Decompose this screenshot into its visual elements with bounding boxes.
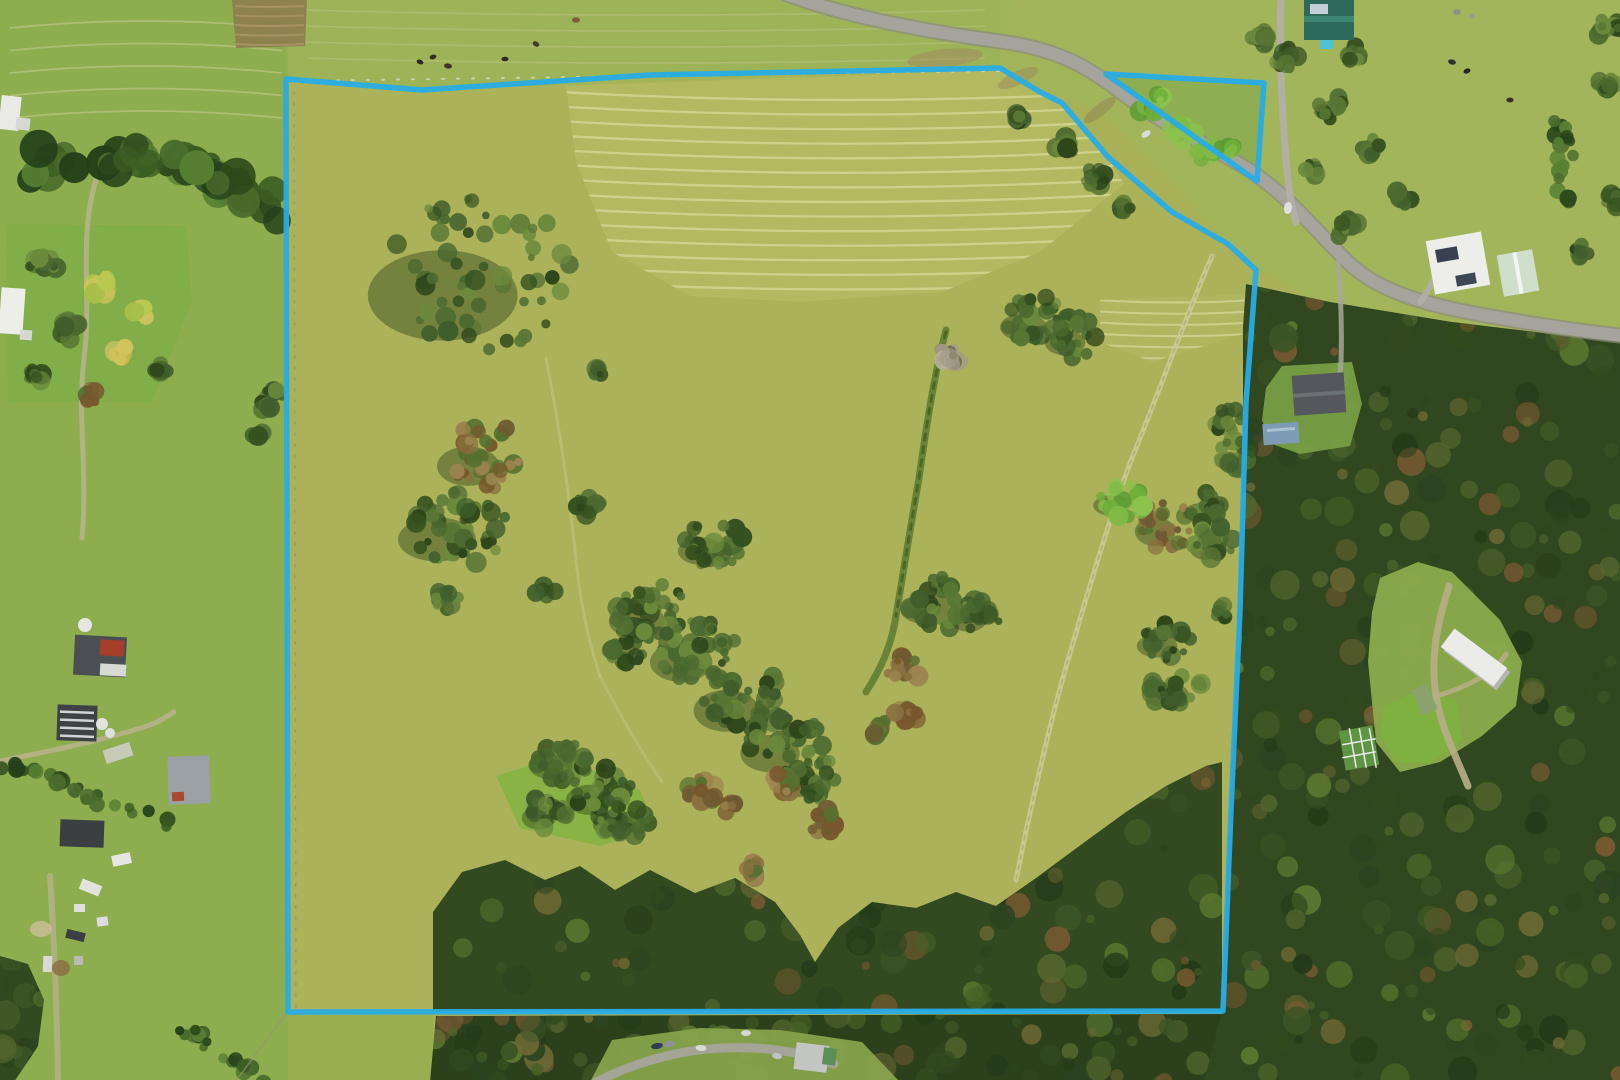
round-pen bbox=[52, 960, 70, 976]
garden-tree bbox=[84, 271, 117, 304]
cow bbox=[572, 17, 580, 22]
cow bbox=[1506, 98, 1513, 103]
vehicle bbox=[96, 916, 108, 926]
aerial-photo bbox=[0, 0, 1620, 1080]
southwest-pasture bbox=[288, 1012, 433, 1080]
water-tank bbox=[78, 618, 92, 632]
rock bbox=[1469, 14, 1475, 19]
dirt-rows bbox=[232, 0, 307, 48]
rock bbox=[1453, 9, 1461, 15]
water-tank bbox=[105, 728, 115, 738]
white-van bbox=[43, 956, 53, 972]
trailer bbox=[74, 904, 85, 912]
dark-shed-roof bbox=[60, 819, 105, 848]
pool bbox=[1320, 40, 1333, 49]
water-tank bbox=[96, 718, 108, 730]
solar-panels bbox=[1310, 4, 1328, 14]
red-roof-section bbox=[100, 639, 125, 656]
cottage-red-section bbox=[172, 792, 184, 801]
parked-car bbox=[741, 1030, 751, 1036]
teal-roof-ridge bbox=[1304, 16, 1354, 22]
south-building-green bbox=[822, 1047, 837, 1065]
small-structure bbox=[74, 956, 83, 965]
aerial-photo-canvas bbox=[0, 0, 1620, 1080]
sand-pad bbox=[30, 921, 52, 937]
neighbour-shed-roof bbox=[15, 117, 30, 130]
cow bbox=[502, 57, 509, 62]
neighbour-shed-roof bbox=[20, 330, 33, 341]
neighbour-house-roof bbox=[0, 287, 26, 335]
blue-shed-roof bbox=[1262, 422, 1299, 445]
deck bbox=[100, 663, 127, 676]
